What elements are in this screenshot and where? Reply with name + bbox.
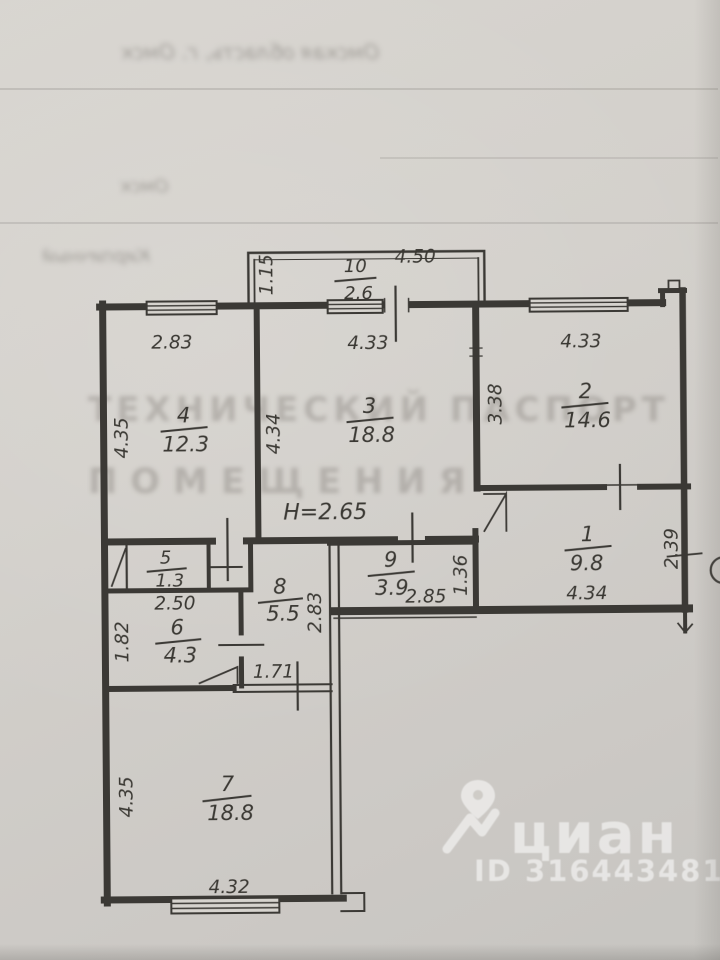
cian-watermark: циан ID 316443481 bbox=[0, 0, 720, 960]
paper-edge-shadow bbox=[694, 0, 720, 960]
listing-id-text: ID 316443481 bbox=[474, 854, 720, 888]
scanned-floorplan-photo: Омская область, г. Омск Омск Кирпичный Т… bbox=[0, 0, 720, 960]
paper-edge-shadow bbox=[0, 944, 720, 960]
cian-logo-mark bbox=[447, 813, 495, 849]
